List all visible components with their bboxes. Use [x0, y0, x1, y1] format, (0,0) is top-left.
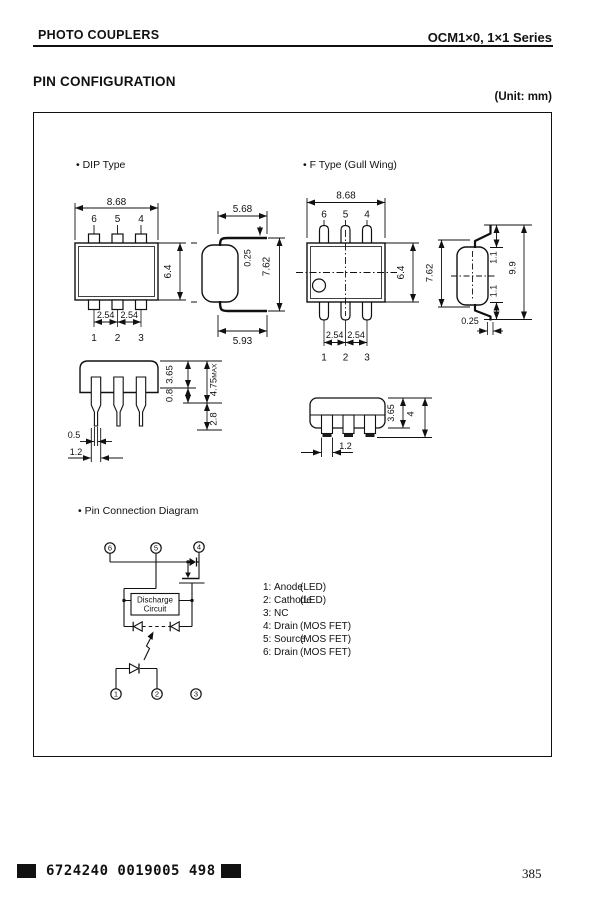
photodiode-left — [134, 622, 142, 631]
dip-pin-label-6: 6 — [91, 214, 97, 225]
dim-f-pitch-right: 2.54 — [347, 330, 365, 340]
discharge-box-line2: Circuit — [144, 605, 167, 614]
dip-body-outline — [75, 243, 158, 300]
pin-device: (LED) — [300, 595, 326, 606]
page-number: 385 — [522, 866, 542, 882]
pin-connection-diagram — [105, 542, 205, 699]
dim-f-lead-top: 1.1 — [489, 251, 499, 264]
f-pin-label-1: 1 — [321, 353, 327, 364]
pin-function: Anode — [274, 582, 300, 595]
pin-function: NC — [274, 608, 300, 621]
dim-dip-lead-thickness: 0.25 — [243, 249, 253, 267]
light-arrow — [144, 636, 152, 661]
dim-f-height: 6.4 — [396, 265, 407, 279]
pin-number: 4: — [263, 621, 274, 634]
pin-device: (MOS FET) — [300, 647, 351, 658]
dim-f-front-lead-width: 1.2 — [339, 441, 352, 451]
pin-function: Source — [274, 634, 300, 647]
dim-f-body-height: 7.62 — [425, 264, 436, 283]
terminal-6-label: 6 — [108, 544, 112, 553]
dim-dip-top-width: 5.68 — [233, 204, 253, 215]
dim-dip-shoulder: 0.8 — [165, 389, 176, 402]
terminal-1-label: 1 — [114, 690, 118, 699]
pin-number: 6: — [263, 647, 274, 660]
dim-dip-lead-base-width: 1.2 — [70, 447, 83, 457]
dim-dip-overall-max: 4.75MAX — [209, 363, 220, 396]
dip-side-view — [202, 211, 285, 337]
terminal-4-label: 4 — [197, 543, 201, 552]
led-diode — [130, 664, 139, 673]
f-side-lead-top — [475, 225, 491, 249]
pin-number: 2: — [263, 595, 274, 608]
pin-list-row: 5:Source(MOS FET) — [263, 634, 351, 647]
dim-dip-lead-width: 0.5 — [68, 430, 81, 440]
dip-front-legs — [91, 377, 145, 426]
f-front-legs — [322, 415, 376, 434]
dip-pin1 — [89, 300, 100, 310]
dim-f-pitch-left: 2.54 — [326, 330, 344, 340]
dim-dip-bottom-width: 5.93 — [233, 336, 253, 347]
dim-dip-lead-length: 2.8 — [209, 412, 220, 425]
pin-function-list: 1:Anode(LED) 2:Cathode(LED) 3:NC 4:Drain… — [263, 582, 351, 659]
dip-pin2 — [112, 300, 123, 310]
terminal-2-label: 2 — [155, 690, 159, 699]
pin-number: 1: — [263, 582, 274, 595]
dip-side-labels: 5.68 0.25 7.62 5.93 — [233, 204, 273, 347]
dim-dip-body-height: 3.65 — [165, 365, 176, 384]
dim-dip-pitch-right: 2.54 — [121, 310, 139, 320]
pin-list-row: 1:Anode(LED) — [263, 582, 351, 595]
dip-pin5 — [112, 234, 123, 244]
pin-number: 3: — [263, 608, 274, 621]
dip-pin-label-5: 5 — [115, 214, 121, 225]
pin-list-row: 2:Cathode(LED) — [263, 595, 351, 608]
pin-device: (LED) — [300, 582, 326, 593]
dim-f-lead-bottom: 1.1 — [489, 285, 499, 298]
dip-side-body — [202, 245, 238, 302]
pin-device: (MOS FET) — [300, 634, 351, 645]
dip-pin3 — [136, 300, 147, 310]
barcode-block-left — [17, 864, 36, 878]
f-pin-label-4: 4 — [364, 210, 370, 221]
f-pin-label-5: 5 — [343, 210, 349, 221]
terminal-3-label: 3 — [194, 690, 198, 699]
f-front-view — [301, 398, 432, 457]
barcode-block-right — [221, 864, 241, 878]
f-pin-label-2: 2 — [343, 353, 349, 364]
pin-list-row: 4:Drain(MOS FET) — [263, 621, 351, 634]
pin-number: 5: — [263, 634, 274, 647]
dim-dip-width: 8.68 — [107, 197, 127, 208]
dim-dip-pitch-left: 2.54 — [97, 310, 115, 320]
dim-f-overall: 9.9 — [508, 261, 519, 274]
technical-drawing: 8.68 6 5 4 2.54 2.54 1 2 3 6.4 5.68 0.25… — [0, 0, 608, 900]
dim-f-front-overall: 4 — [406, 411, 417, 416]
discharge-box-line1: Discharge — [137, 596, 174, 605]
f-pin-label-3: 3 — [364, 353, 370, 364]
pin-function: Drain — [274, 621, 300, 634]
dip-pin-label-3: 3 — [138, 333, 144, 344]
f-front-feet — [323, 434, 375, 438]
pin-list-row: 6:Drain(MOS FET) — [263, 647, 351, 660]
dip-front-view — [68, 361, 222, 462]
dim-f-front-body-height: 3.65 — [386, 404, 396, 422]
dim-f-lead-thickness: 0.25 — [461, 316, 479, 326]
dip-pin-label-2: 2 — [115, 333, 121, 344]
document-code: 6724240 0019005 498 — [46, 863, 216, 879]
dip-pin6 — [89, 234, 100, 244]
dip-pin4 — [136, 234, 147, 244]
dim-f-width: 8.68 — [336, 191, 356, 202]
terminal-5-label: 5 — [154, 544, 158, 553]
pin-list-row: 3:NC — [263, 608, 351, 621]
mosfet-body-diode — [190, 558, 197, 566]
dim-dip-side-height: 7.62 — [262, 256, 273, 276]
f-side-view — [438, 225, 532, 336]
f-pin-label-6: 6 — [321, 210, 327, 221]
pin-function: Cathode — [274, 595, 300, 608]
photodiode-right — [171, 622, 179, 631]
pin-function: Drain — [274, 647, 300, 660]
dip-pin-label-1: 1 — [91, 333, 97, 344]
dip-pin-label-4: 4 — [138, 214, 144, 225]
pin-device: (MOS FET) — [300, 621, 351, 632]
dim-dip-height: 6.4 — [163, 264, 174, 278]
pin-diagram-labels: 6 5 4 1 2 3 Discharge Circuit — [108, 543, 201, 699]
